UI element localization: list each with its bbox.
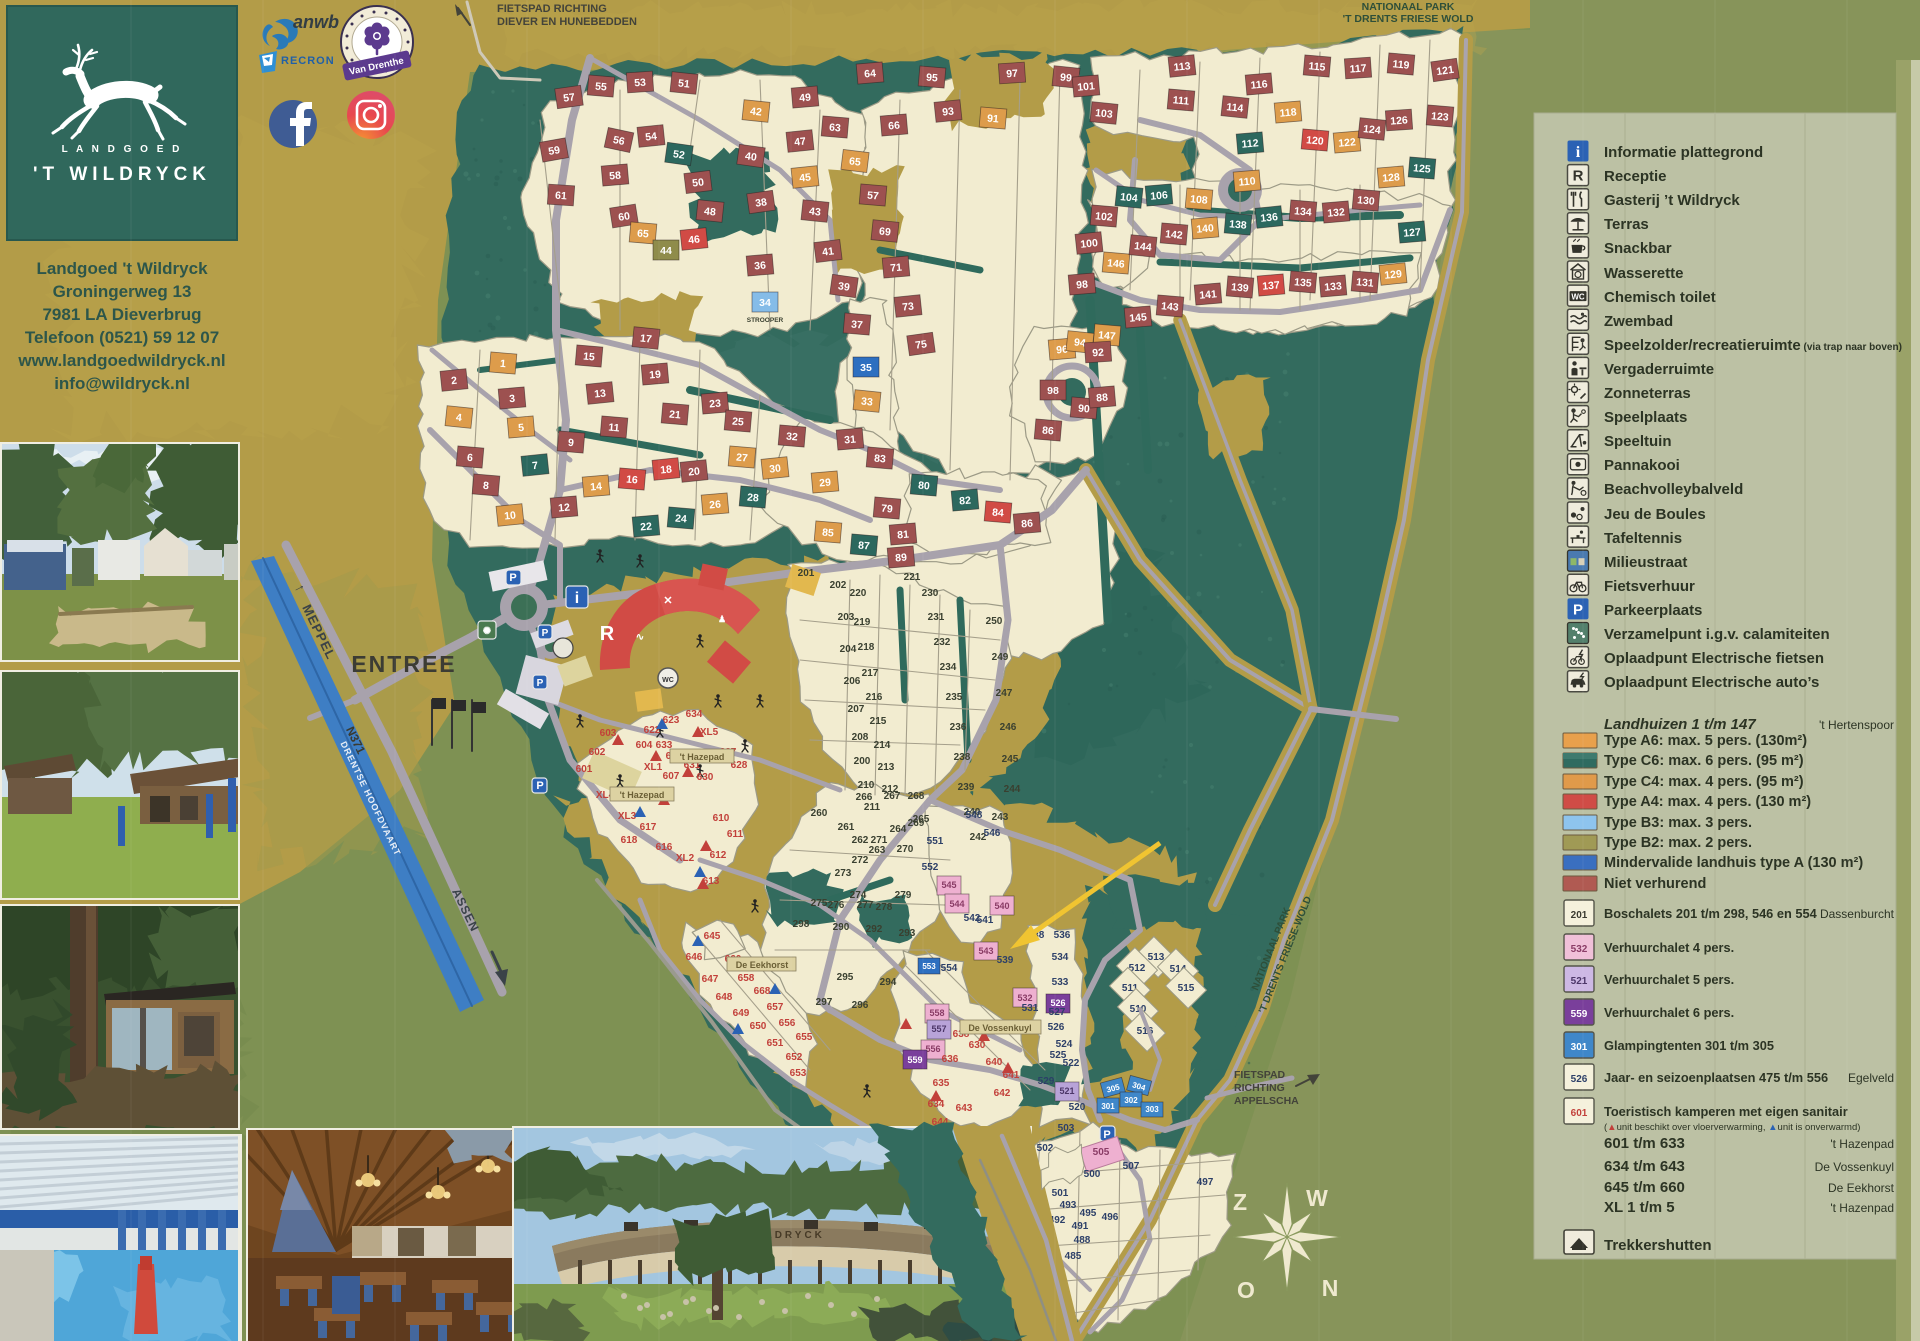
svg-text:219: 219 — [854, 617, 871, 628]
svg-text:De Eekhorst: De Eekhorst — [1828, 1181, 1895, 1195]
svg-text:Parkeerplaats: Parkeerplaats — [1604, 602, 1702, 619]
svg-text:521: 521 — [1059, 1086, 1074, 1096]
svg-text:145: 145 — [1129, 311, 1148, 324]
svg-text:ENTREE: ENTREE — [351, 651, 456, 677]
svg-text:213: 213 — [878, 762, 895, 773]
svg-text:303: 303 — [1145, 1105, 1159, 1114]
svg-text:290: 290 — [833, 922, 850, 933]
svg-text:266: 266 — [856, 792, 873, 803]
svg-text:505: 505 — [1093, 1147, 1110, 1158]
svg-text:276: 276 — [828, 900, 845, 911]
svg-text:125: 125 — [1413, 162, 1432, 175]
svg-text:656: 656 — [779, 1018, 796, 1029]
svg-text:P: P — [537, 678, 544, 689]
svg-text:607: 607 — [663, 771, 680, 782]
svg-text:612: 612 — [710, 850, 727, 861]
svg-text:XL 1 t/m 5: XL 1 t/m 5 — [1604, 1199, 1675, 1216]
svg-text:XL2: XL2 — [676, 853, 695, 864]
svg-text:270: 270 — [897, 844, 914, 855]
svg-text:83: 83 — [874, 453, 887, 466]
svg-text:23: 23 — [709, 397, 722, 410]
svg-text:R: R — [1573, 168, 1584, 185]
svg-text:52: 52 — [672, 148, 685, 162]
svg-text:202: 202 — [830, 580, 847, 591]
svg-text:657: 657 — [767, 1002, 784, 1013]
svg-text:65: 65 — [637, 228, 650, 241]
svg-text:P: P — [1573, 601, 1583, 618]
svg-text:210: 210 — [858, 780, 875, 791]
svg-text:495: 495 — [1080, 1208, 1097, 1219]
svg-text:112: 112 — [1241, 137, 1259, 150]
svg-text:279: 279 — [895, 890, 912, 901]
svg-text:Type B3: max. 3 pers.: Type B3: max. 3 pers. — [1604, 815, 1752, 831]
svg-text:134: 134 — [1294, 205, 1313, 218]
svg-text:Speeltuin: Speeltuin — [1604, 433, 1672, 450]
svg-text:Milieustraat: Milieustraat — [1604, 554, 1687, 571]
svg-text:Chemisch toilet: Chemisch toilet — [1604, 289, 1716, 306]
svg-text:132: 132 — [1327, 206, 1346, 219]
svg-text:200: 200 — [854, 756, 871, 767]
svg-text:539: 539 — [997, 955, 1014, 966]
svg-text:38: 38 — [755, 196, 768, 210]
svg-text:118: 118 — [1279, 106, 1297, 119]
svg-text:31: 31 — [844, 433, 857, 446]
svg-text:601 t/m 633: 601 t/m 633 — [1604, 1135, 1685, 1152]
svg-text:P: P — [509, 572, 516, 584]
svg-text:STROOPER: STROOPER — [747, 317, 784, 324]
svg-text:♟: ♟ — [718, 614, 726, 624]
svg-text:634 t/m 643: 634 t/m 643 — [1604, 1158, 1685, 1175]
svg-text:'t Hazepad: 't Hazepad — [620, 790, 665, 800]
svg-text:88: 88 — [1096, 391, 1109, 404]
svg-text:90: 90 — [1078, 403, 1091, 416]
svg-text:297: 297 — [816, 997, 833, 1008]
svg-text:Type C4: max. 4 pers. (95 m²): Type C4: max. 4 pers. (95 m²) — [1604, 774, 1804, 790]
svg-text:25: 25 — [732, 416, 745, 429]
svg-text:Type C6: max. 6 pers. (95 m²): Type C6: max. 6 pers. (95 m²) — [1604, 753, 1804, 769]
svg-text:635: 635 — [933, 1078, 950, 1089]
svg-text:'t Hertenspoor: 't Hertenspoor — [1819, 718, 1894, 732]
svg-text:92: 92 — [1092, 347, 1105, 360]
svg-text:206: 206 — [844, 676, 861, 687]
svg-text:Landhuizen 1 t/m 147: Landhuizen 1 t/m 147 — [1604, 716, 1756, 733]
svg-text:645 t/m 660: 645 t/m 660 — [1604, 1179, 1685, 1196]
svg-text:'t Hazepad: 't Hazepad — [680, 752, 725, 762]
svg-text:653: 653 — [790, 1068, 807, 1079]
svg-text:493: 493 — [1060, 1200, 1077, 1211]
svg-text:15: 15 — [583, 351, 596, 364]
svg-text:208: 208 — [852, 732, 869, 743]
svg-text:217: 217 — [862, 668, 879, 679]
svg-text:54: 54 — [645, 130, 658, 143]
svg-text:55: 55 — [595, 81, 608, 94]
svg-text:82: 82 — [959, 494, 972, 507]
svg-text:Beachvolleybalveld: Beachvolleybalveld — [1604, 481, 1743, 498]
svg-text:20: 20 — [688, 465, 701, 478]
svg-text:Oplaadpunt Electrische auto’s: Oplaadpunt Electrische auto’s — [1604, 674, 1819, 691]
svg-text:135: 135 — [1294, 276, 1313, 289]
svg-text:273: 273 — [835, 868, 852, 879]
svg-text:Zonneterras: Zonneterras — [1604, 385, 1691, 402]
svg-text:51: 51 — [677, 77, 690, 90]
svg-text:98: 98 — [1076, 278, 1089, 291]
svg-text:95: 95 — [926, 72, 939, 85]
svg-text:497: 497 — [1197, 1177, 1214, 1188]
svg-text:298: 298 — [793, 919, 810, 930]
svg-text:89: 89 — [895, 551, 908, 564]
svg-text:Groningerweg 13: Groningerweg 13 — [53, 282, 192, 301]
svg-text:FIETSPAD RICHTING: FIETSPAD RICHTING — [497, 3, 607, 15]
svg-text:42: 42 — [749, 105, 762, 118]
svg-text:536: 536 — [1054, 930, 1071, 941]
svg-text:520: 520 — [1069, 1102, 1086, 1113]
svg-text:122: 122 — [1338, 136, 1357, 149]
svg-text:108: 108 — [1190, 193, 1209, 206]
svg-text:652: 652 — [786, 1052, 803, 1063]
svg-text:507: 507 — [1123, 1161, 1140, 1172]
svg-text:28: 28 — [747, 492, 760, 505]
svg-text:301: 301 — [1101, 1102, 1115, 1111]
svg-text:541: 541 — [977, 915, 994, 926]
svg-text:531: 531 — [1022, 1003, 1039, 1014]
svg-text:P: P — [536, 780, 543, 792]
svg-text:141: 141 — [1199, 288, 1218, 301]
svg-text:139: 139 — [1231, 281, 1250, 294]
svg-text:491: 491 — [1072, 1221, 1089, 1232]
svg-text:91: 91 — [987, 113, 1000, 126]
svg-text:104: 104 — [1120, 191, 1139, 205]
svg-text:48: 48 — [703, 205, 716, 218]
svg-text:244: 244 — [1004, 784, 1021, 795]
svg-text:522: 522 — [1063, 1058, 1080, 1069]
svg-text:Z: Z — [1233, 1189, 1247, 1215]
svg-text:49: 49 — [799, 91, 812, 104]
svg-text:147: 147 — [1098, 329, 1117, 342]
svg-text:60: 60 — [617, 210, 631, 224]
svg-text:Terras: Terras — [1604, 216, 1649, 233]
svg-text:649: 649 — [733, 1008, 750, 1019]
svg-text:131: 131 — [1356, 276, 1375, 289]
svg-text:98: 98 — [1047, 385, 1059, 397]
svg-text:Verzamelpunt i.g.v. calamiteit: Verzamelpunt i.g.v. calamiteiten — [1604, 626, 1830, 643]
svg-text:Receptie: Receptie — [1604, 168, 1667, 185]
svg-text:532: 532 — [1017, 993, 1032, 1003]
svg-text:84: 84 — [992, 507, 1005, 520]
svg-text:Gasterij ’t Wildryck: Gasterij ’t Wildryck — [1604, 192, 1740, 209]
svg-text:292: 292 — [866, 924, 883, 935]
svg-text:204: 204 — [840, 644, 857, 655]
svg-text:272: 272 — [852, 855, 869, 866]
svg-text:278: 278 — [876, 902, 893, 913]
svg-text:(▲unit beschikt over vloerverw: (▲unit beschikt over vloerverwarming, ▲u… — [1604, 1122, 1860, 1133]
svg-text:238: 238 — [954, 752, 971, 763]
svg-text:∿: ∿ — [636, 632, 644, 643]
svg-text:61: 61 — [555, 190, 568, 203]
svg-text:www.landgoedwildryck.nl: www.landgoedwildryck.nl — [17, 351, 225, 370]
svg-text:201: 201 — [1571, 910, 1588, 921]
svg-text:540: 540 — [994, 901, 1009, 911]
svg-text:'T WILDRYCK: 'T WILDRYCK — [33, 164, 211, 185]
svg-text:128: 128 — [1382, 171, 1401, 184]
svg-text:120: 120 — [1306, 134, 1325, 147]
svg-text:9: 9 — [567, 437, 574, 449]
svg-text:47: 47 — [794, 135, 807, 148]
svg-text:262: 262 — [852, 835, 869, 846]
svg-text:26: 26 — [709, 498, 722, 511]
svg-text:Glampingtenten 301 t/m 305: Glampingtenten 301 t/m 305 — [1604, 1038, 1774, 1053]
svg-text:17: 17 — [639, 332, 652, 345]
svg-text:129: 129 — [1384, 268, 1403, 282]
svg-text:✕: ✕ — [663, 595, 672, 607]
svg-text:Jaar- en seizoenplaatsen 475 t: Jaar- en seizoenplaatsen 475 t/m 556 — [1604, 1070, 1828, 1085]
svg-text:243: 243 — [992, 812, 1009, 823]
svg-text:235: 235 — [946, 692, 963, 703]
svg-text:Snackbar: Snackbar — [1604, 240, 1672, 257]
svg-text:143: 143 — [1161, 300, 1180, 313]
svg-text:RICHTING: RICHTING — [1234, 1082, 1285, 1094]
svg-text:207: 207 — [848, 704, 865, 715]
svg-text:79: 79 — [881, 503, 894, 516]
svg-text:P: P — [542, 628, 549, 639]
svg-text:610: 610 — [713, 813, 730, 824]
svg-text:250: 250 — [986, 616, 1003, 627]
svg-text:124: 124 — [1363, 123, 1382, 137]
svg-text:218: 218 — [858, 642, 875, 653]
svg-text:99: 99 — [1059, 71, 1072, 84]
svg-text:Telefoon (0521) 59 12 07: Telefoon (0521) 59 12 07 — [25, 328, 219, 347]
svg-text:544: 544 — [949, 899, 964, 909]
svg-text:45: 45 — [799, 171, 812, 184]
svg-text:142: 142 — [1165, 228, 1184, 241]
svg-text:232: 232 — [934, 637, 951, 648]
svg-text:Type A4: max. 4 pers. (130 m²): Type A4: max. 4 pers. (130 m²) — [1604, 794, 1811, 810]
svg-text:W: W — [1306, 1185, 1328, 1211]
svg-text:216: 216 — [866, 692, 883, 703]
svg-text:Zwembad: Zwembad — [1604, 313, 1673, 330]
svg-text:261: 261 — [838, 822, 855, 833]
svg-text:13: 13 — [594, 387, 607, 400]
svg-text:127: 127 — [1403, 226, 1422, 239]
svg-text:601: 601 — [576, 764, 593, 775]
svg-text:114: 114 — [1226, 101, 1244, 115]
svg-text:Type A6: max. 5 pers. (130m²): Type A6: max. 5 pers. (130m²) — [1604, 733, 1807, 749]
svg-text:30: 30 — [769, 462, 782, 475]
svg-text:14: 14 — [590, 480, 603, 493]
svg-text:NATIONAAL PARK: NATIONAAL PARK — [1362, 1, 1455, 13]
svg-text:247: 247 — [996, 688, 1013, 699]
svg-text:117: 117 — [1349, 62, 1367, 75]
svg-text:75: 75 — [915, 338, 928, 352]
svg-text:46: 46 — [688, 233, 701, 246]
svg-text:611: 611 — [727, 829, 744, 840]
svg-text:556: 556 — [925, 1044, 940, 1054]
svg-text:211: 211 — [864, 802, 881, 813]
svg-text:5: 5 — [518, 422, 525, 434]
svg-text:O: O — [1237, 1277, 1255, 1303]
svg-text:557: 557 — [931, 1024, 946, 1034]
svg-text:265: 265 — [913, 814, 930, 825]
svg-text:Vergaderruimte: Vergaderruimte — [1604, 361, 1714, 378]
svg-text:Informatie plattegrond: Informatie plattegrond — [1604, 144, 1763, 161]
svg-text:558: 558 — [929, 1008, 944, 1018]
svg-text:302: 302 — [1124, 1096, 1138, 1105]
svg-text:73: 73 — [902, 300, 915, 313]
svg-text:651: 651 — [767, 1038, 784, 1049]
svg-text:RECRON: RECRON — [281, 55, 335, 67]
svg-text:246: 246 — [1000, 722, 1017, 733]
svg-text:249: 249 — [992, 652, 1009, 663]
svg-text:245: 245 — [1002, 754, 1019, 765]
svg-text:40: 40 — [744, 150, 757, 164]
svg-text:63: 63 — [829, 122, 842, 135]
svg-text:554: 554 — [941, 963, 958, 974]
svg-text:524: 524 — [1056, 1039, 1073, 1050]
svg-text:239: 239 — [958, 782, 975, 793]
svg-text:231: 231 — [928, 612, 945, 623]
svg-text:230: 230 — [922, 588, 939, 599]
svg-text:1: 1 — [499, 358, 506, 370]
svg-text:10: 10 — [504, 509, 517, 522]
svg-text:201: 201 — [798, 568, 815, 579]
svg-text:44: 44 — [660, 245, 672, 257]
svg-text:De Eekhorst: De Eekhorst — [736, 960, 789, 970]
svg-text:630: 630 — [697, 772, 714, 783]
svg-text:8: 8 — [482, 480, 489, 492]
svg-text:126: 126 — [1390, 114, 1408, 127]
svg-text:57: 57 — [867, 190, 880, 203]
svg-text:Egelveld: Egelveld — [1848, 1071, 1894, 1085]
svg-text:58: 58 — [609, 169, 622, 182]
svg-text:Landgoed 't Wildryck: Landgoed 't Wildryck — [36, 259, 208, 278]
svg-text:WC: WC — [662, 677, 674, 684]
svg-text:59: 59 — [547, 144, 561, 158]
svg-text:551: 551 — [927, 836, 944, 847]
svg-text:22: 22 — [640, 520, 653, 533]
svg-text:39: 39 — [837, 280, 850, 294]
svg-text:✺: ✺ — [483, 626, 492, 637]
svg-text:66: 66 — [888, 119, 901, 132]
svg-text:93: 93 — [942, 105, 955, 118]
svg-text:604: 604 — [636, 740, 653, 751]
svg-text:137: 137 — [1262, 279, 1281, 292]
svg-text:anwb: anwb — [293, 12, 339, 32]
svg-text:603: 603 — [600, 728, 617, 739]
svg-text:646: 646 — [686, 952, 703, 963]
svg-text:264: 264 — [890, 824, 907, 835]
svg-text:203: 203 — [838, 612, 855, 623]
svg-text:215: 215 — [870, 716, 887, 727]
svg-text:144: 144 — [1134, 240, 1153, 254]
svg-text:110: 110 — [1238, 175, 1256, 188]
svg-text:86: 86 — [1021, 517, 1034, 530]
svg-text:N: N — [1322, 1275, 1339, 1301]
svg-text:293: 293 — [899, 928, 916, 939]
svg-text:Tafeltennis: Tafeltennis — [1604, 530, 1682, 547]
svg-text:R: R — [600, 623, 615, 645]
svg-text:485: 485 — [1065, 1251, 1082, 1262]
svg-text:6: 6 — [466, 452, 473, 464]
svg-text:'T DRENTS FRIESE WOLD: 'T DRENTS FRIESE WOLD — [1343, 13, 1474, 25]
svg-text:69: 69 — [878, 225, 891, 238]
svg-text:559: 559 — [907, 1055, 922, 1065]
svg-text:Toeristisch kamperen met eigen: Toeristisch kamperen met eigen sanitair — [1604, 1104, 1848, 1119]
svg-text:123: 123 — [1431, 110, 1450, 123]
svg-text:APPELSCHA: APPELSCHA — [1234, 1095, 1299, 1107]
svg-text:Niet verhurend: Niet verhurend — [1604, 876, 1706, 892]
svg-text:548: 548 — [966, 810, 983, 821]
svg-text:546: 546 — [984, 828, 1001, 839]
svg-text:275: 275 — [811, 898, 828, 909]
svg-text:113: 113 — [1173, 60, 1191, 74]
svg-text:27: 27 — [736, 452, 749, 465]
svg-text:i: i — [1576, 144, 1581, 161]
svg-text:64: 64 — [864, 67, 877, 80]
svg-text:553: 553 — [922, 962, 936, 971]
svg-text:488: 488 — [1074, 1235, 1091, 1246]
svg-text:138: 138 — [1229, 218, 1248, 231]
svg-text:526: 526 — [1571, 1074, 1588, 1085]
svg-text:500: 500 — [1084, 1169, 1101, 1180]
svg-text:Dassenburcht: Dassenburcht — [1820, 907, 1895, 921]
svg-text:57: 57 — [563, 91, 576, 105]
svg-text:'t Hazenpad: 't Hazenpad — [1830, 1201, 1894, 1215]
svg-text:34: 34 — [759, 297, 771, 309]
svg-text:221: 221 — [904, 572, 921, 583]
svg-text:DIEVER EN HUNEBEDDEN: DIEVER EN HUNEBEDDEN — [497, 16, 637, 28]
svg-text:602: 602 — [589, 747, 606, 758]
svg-text:Mindervalide landhuis type A (: Mindervalide landhuis type A (130 m²) — [1604, 855, 1863, 871]
svg-text:526: 526 — [1048, 1022, 1065, 1033]
svg-text:Boschalets 201 t/m 298, 546 en: Boschalets 201 t/m 298, 546 en 554 — [1604, 906, 1818, 921]
svg-text:636: 636 — [942, 1054, 959, 1065]
svg-text:Speelplaats: Speelplaats — [1604, 409, 1687, 426]
svg-text:236: 236 — [950, 722, 967, 733]
svg-text:11: 11 — [608, 422, 620, 435]
svg-text:543: 543 — [978, 946, 993, 956]
svg-text:496: 496 — [1102, 1212, 1119, 1223]
svg-text:650: 650 — [750, 1021, 767, 1032]
svg-text:Pannakooi: Pannakooi — [1604, 457, 1680, 474]
svg-text:658: 658 — [738, 973, 755, 984]
svg-text:FIETSPAD: FIETSPAD — [1234, 1069, 1286, 1081]
svg-text:L A N D G O E D: L A N D G O E D — [62, 144, 183, 155]
svg-text:601: 601 — [1571, 1108, 1588, 1119]
svg-text:97: 97 — [1006, 68, 1019, 81]
svg-text:7981 LA Dieverbrug: 7981 LA Dieverbrug — [42, 305, 201, 324]
svg-text:106: 106 — [1150, 189, 1169, 202]
svg-text:647: 647 — [702, 974, 719, 985]
svg-text:81: 81 — [897, 528, 910, 541]
svg-text:559: 559 — [1571, 1009, 1588, 1020]
svg-text:617: 617 — [640, 822, 657, 833]
svg-text:21: 21 — [669, 409, 682, 422]
svg-text:36: 36 — [754, 259, 767, 272]
svg-text:545: 545 — [941, 880, 956, 890]
svg-text:'t Hazenpad: 't Hazenpad — [1830, 1137, 1894, 1151]
svg-text:71: 71 — [890, 261, 903, 274]
svg-text:655: 655 — [796, 1032, 813, 1043]
svg-text:Fietsverhuur: Fietsverhuur — [1604, 578, 1695, 595]
svg-text:102: 102 — [1095, 210, 1114, 223]
svg-text:503: 503 — [1058, 1123, 1075, 1134]
svg-text:85: 85 — [822, 527, 835, 540]
svg-text:101: 101 — [1077, 80, 1096, 93]
svg-text:50: 50 — [692, 176, 705, 189]
svg-text:65: 65 — [848, 155, 861, 168]
svg-text:527: 527 — [1049, 1007, 1066, 1018]
svg-text:277: 277 — [857, 900, 874, 911]
svg-text:Jeu de Boules: Jeu de Boules — [1604, 506, 1706, 523]
